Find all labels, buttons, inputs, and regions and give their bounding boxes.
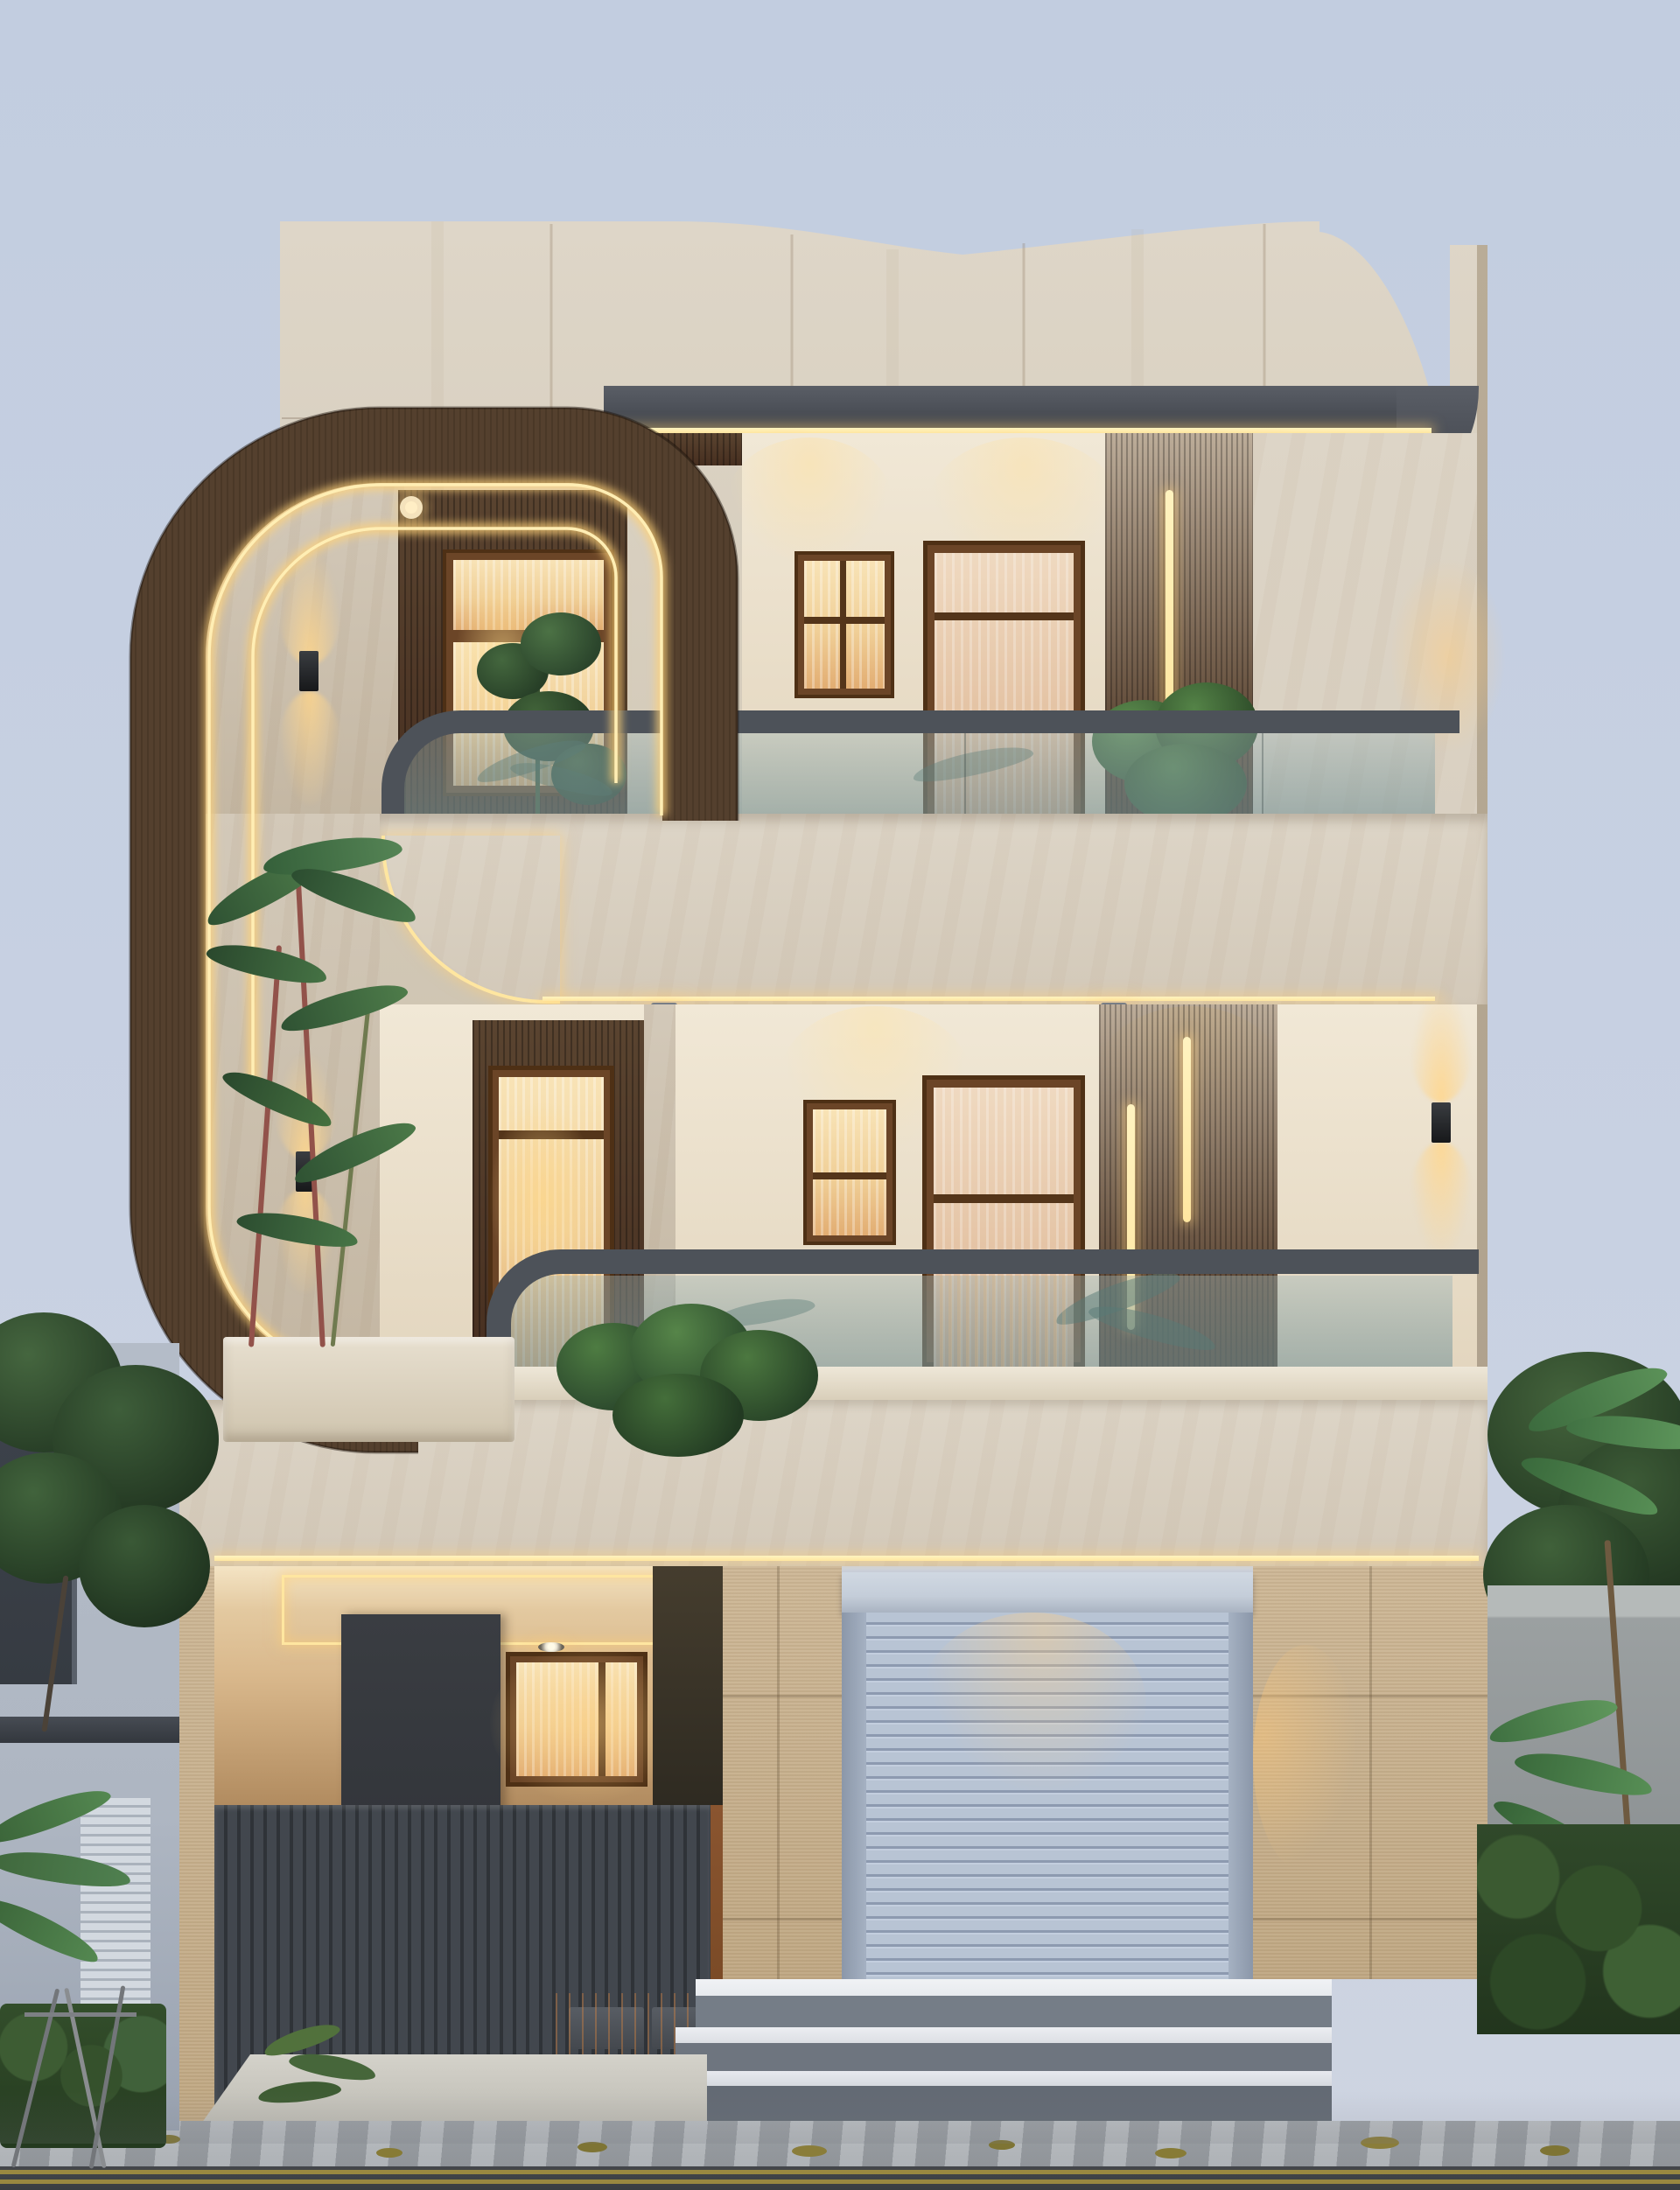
step-tread: [654, 2071, 1332, 2086]
right-tan-wall: [1253, 1566, 1487, 1979]
tile-seam: [1253, 1918, 1487, 1921]
mid-tan-pier: [723, 1566, 842, 1979]
marble-planter: [223, 1337, 514, 1442]
wall-spill-glow: [1253, 1645, 1358, 1872]
rolling-shutter: [866, 1613, 1228, 1979]
road-yellow-line: [0, 2170, 1680, 2174]
step-tread: [675, 2027, 1332, 2043]
dusk-haze: [0, 2091, 1680, 2144]
neighbor-awning: [0, 1717, 179, 1743]
shutter-warm-glow: [919, 1613, 1146, 1796]
shutter-hood: [842, 1572, 1253, 1613]
left-tan-pier: [175, 1566, 214, 2126]
step-tread: [696, 1979, 1332, 1996]
step-riser: [696, 1996, 1332, 2027]
road-yellow-line: [0, 2180, 1680, 2184]
dusk-house-render: [0, 0, 1680, 2190]
shutter-jamb-left: [842, 1613, 866, 1979]
shutter-jamb-right: [1228, 1613, 1253, 1979]
tile-seam: [723, 1695, 842, 1697]
frame-led-cove-outer-glow: [209, 485, 661, 1375]
right-hedge: [1477, 1824, 1680, 2034]
frame-led-cove-outer: [209, 485, 661, 1375]
porch-dark-feature-wall: [341, 1614, 500, 1816]
tile-seam: [723, 1918, 842, 1921]
step-riser: [675, 2043, 1332, 2071]
